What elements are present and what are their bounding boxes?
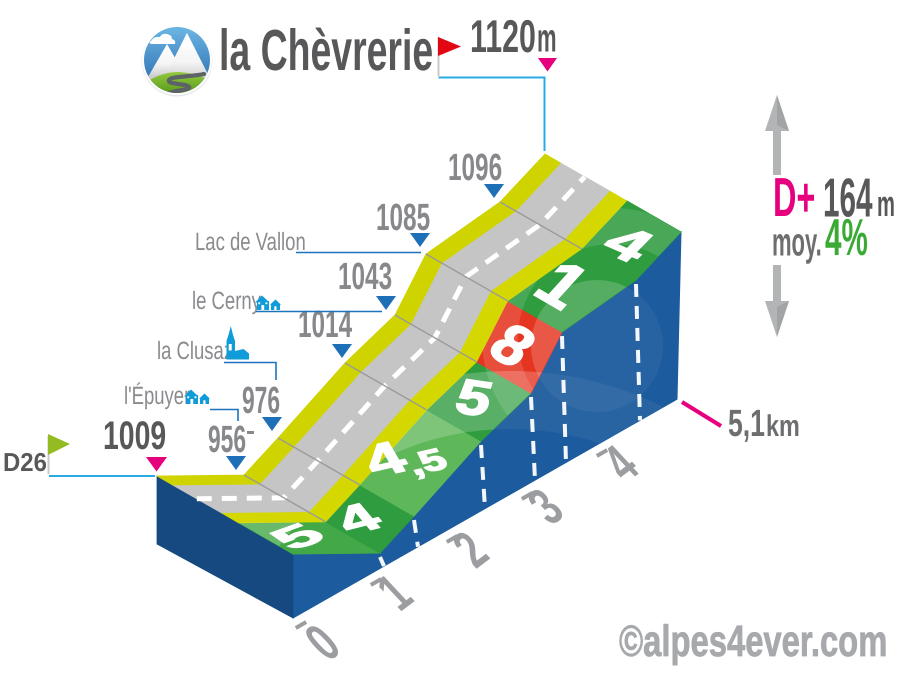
svg-text:Lac de Vallon: Lac de Vallon [195, 228, 306, 256]
svg-text:0: 0 [293, 613, 352, 671]
svg-text:1096: 1096 [448, 147, 502, 189]
svg-text:1085: 1085 [376, 197, 430, 239]
svg-text:1009: 1009 [103, 414, 166, 458]
svg-text:1: 1 [365, 563, 424, 621]
svg-text:976: 976 [242, 380, 280, 422]
svg-text:l'Épuyer: l'Épuyer [124, 382, 190, 410]
svg-text:moy.: moy. [772, 221, 822, 265]
svg-text:m: m [537, 17, 557, 61]
svg-text:la Chèvrerie: la Chèvrerie [219, 18, 433, 83]
svg-text:5,1: 5,1 [728, 403, 765, 445]
svg-text:le Cerny: le Cerny [192, 287, 261, 315]
svg-text:m: m [877, 183, 895, 224]
svg-text:4%: 4% [825, 209, 868, 267]
svg-text:4: 4 [591, 434, 650, 492]
svg-text:D+: D+ [773, 166, 815, 228]
svg-text:956: 956 [208, 419, 246, 461]
svg-text:D26: D26 [3, 447, 47, 477]
svg-text:3: 3 [516, 477, 575, 535]
svg-text:©alpes4ever.com: ©alpes4ever.com [619, 617, 887, 666]
svg-text:1043: 1043 [338, 256, 392, 298]
svg-text:1014: 1014 [298, 304, 352, 346]
svg-text:km: km [766, 410, 800, 443]
svg-text:1120: 1120 [470, 10, 536, 62]
svg-text:2: 2 [441, 520, 500, 578]
svg-text:la Clusaz: la Clusaz [157, 337, 233, 365]
